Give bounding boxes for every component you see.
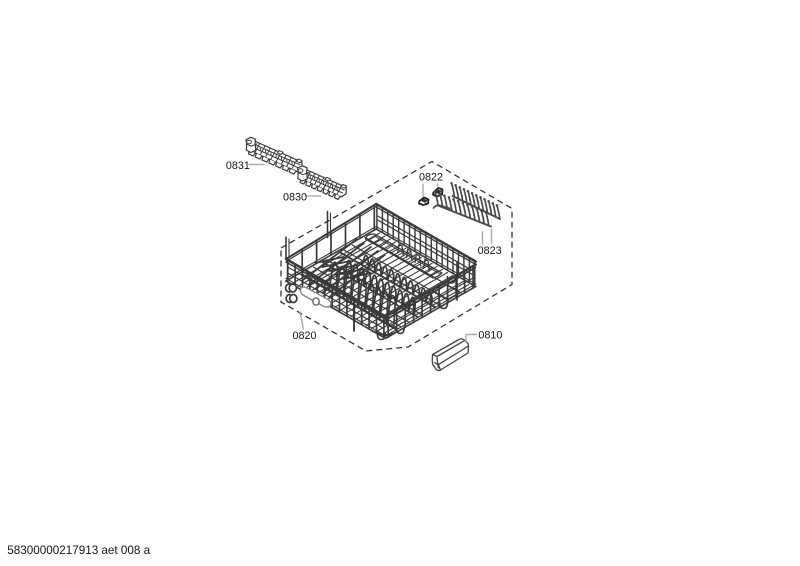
svg-text:0820: 0820 bbox=[293, 330, 317, 342]
svg-text:0831: 0831 bbox=[226, 160, 250, 172]
svg-text:0810: 0810 bbox=[478, 329, 502, 341]
svg-text:0830: 0830 bbox=[283, 191, 307, 203]
svg-text:58300000217913 aet 008 a: 58300000217913 aet 008 a bbox=[7, 544, 150, 557]
svg-text:0822: 0822 bbox=[419, 171, 443, 183]
svg-text:0823: 0823 bbox=[478, 245, 502, 257]
